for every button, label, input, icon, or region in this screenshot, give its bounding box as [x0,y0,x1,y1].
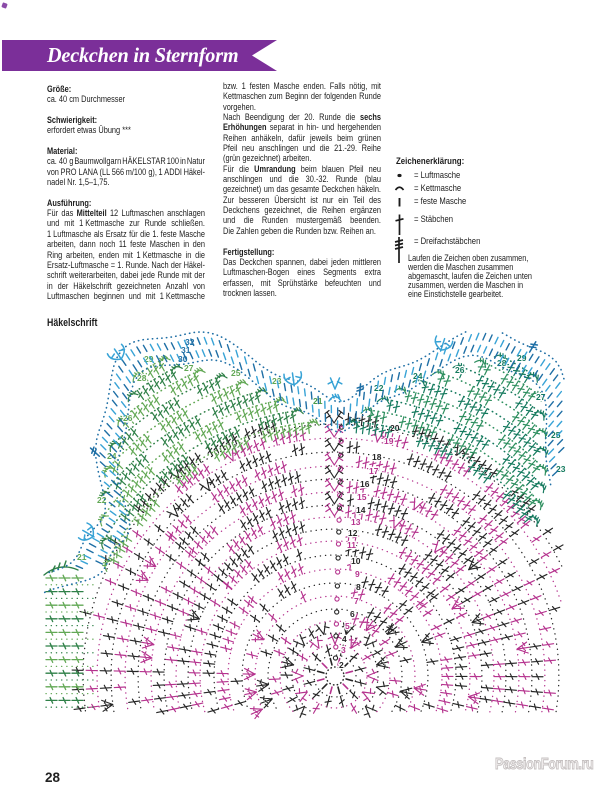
svg-text:4: 4 [342,634,347,644]
svg-text:30: 30 [178,354,188,364]
svg-text:27: 27 [184,363,194,373]
svg-text:16: 16 [360,479,370,489]
svg-text:18: 18 [372,452,382,462]
svg-text:32: 32 [185,337,195,347]
svg-text:26: 26 [455,365,465,375]
svg-text:3: 3 [341,645,346,655]
svg-text:6: 6 [350,609,355,619]
svg-text:25: 25 [231,368,241,378]
svg-text:14: 14 [356,505,366,515]
svg-text:28: 28 [497,358,507,368]
svg-text:11: 11 [347,540,356,550]
svg-text:9: 9 [355,569,360,579]
svg-text:17: 17 [369,466,379,476]
svg-text:23: 23 [556,464,566,474]
svg-text:10: 10 [351,556,361,566]
svg-text:13: 13 [351,517,361,527]
svg-text:21: 21 [77,552,87,562]
svg-text:2: 2 [339,660,344,670]
svg-text:15: 15 [357,492,367,502]
svg-text:8: 8 [356,582,361,592]
svg-text:7: 7 [354,596,359,606]
svg-text:12: 12 [348,528,358,538]
svg-text:22: 22 [374,383,384,393]
svg-text:5: 5 [345,621,350,631]
svg-text:19: 19 [384,436,394,446]
